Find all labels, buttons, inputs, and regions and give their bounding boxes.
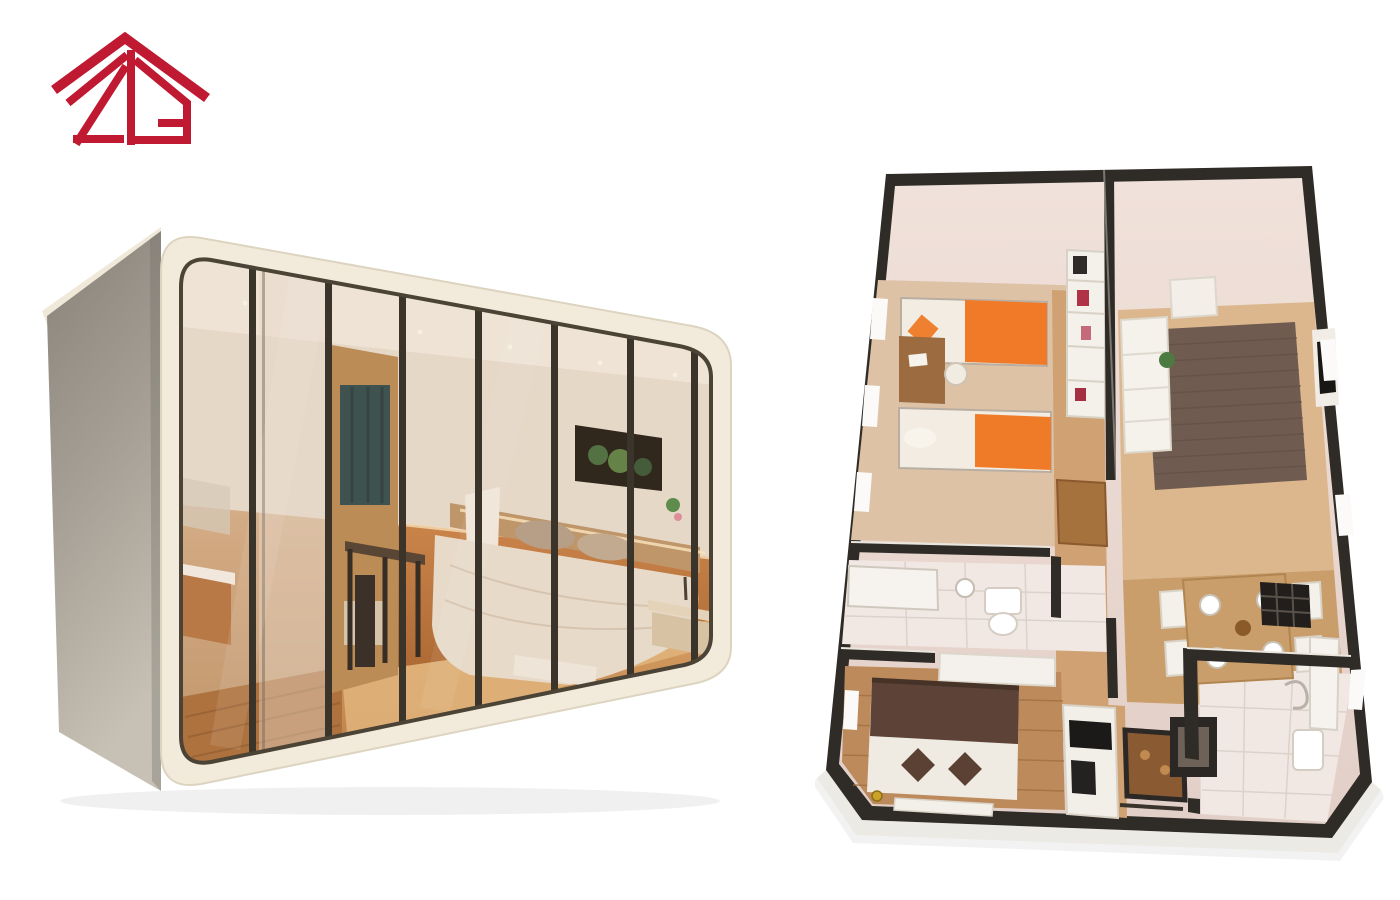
- pod-render: capsule house exterior render: [30, 205, 745, 817]
- window-left-4: [843, 690, 859, 730]
- mullion: [627, 335, 634, 681]
- shelf-item-dark: [1073, 256, 1087, 274]
- shelf-item-pink: [1081, 326, 1091, 340]
- wall-bathroom-main-left: [1183, 648, 1199, 760]
- mullion: [551, 322, 558, 695]
- brand-logo-2g-icon: 2G: [48, 14, 213, 164]
- bathroom-small-tub: [848, 566, 938, 610]
- wall-bathroom-main-stub: [1188, 798, 1200, 814]
- stove-burner: [1160, 765, 1170, 775]
- bathroom-main-counter: [1310, 637, 1339, 730]
- kids-bed-1-blanket: [965, 300, 1047, 365]
- living-sofa: [1121, 317, 1171, 453]
- bathroom-small-toilet-tank: [985, 588, 1021, 614]
- kids-desk-paper: [908, 353, 927, 367]
- kitchen-appliance-oven: [1071, 760, 1096, 795]
- plan-hall-cabinet: [1057, 480, 1107, 546]
- bathroom-small-sink: [956, 579, 974, 597]
- master-dresser: [939, 653, 1055, 686]
- wall-entry: [1106, 618, 1118, 698]
- master-gold-lamp: [872, 791, 882, 801]
- floor-plan-render: apartment 3D floor plan render: [815, 150, 1390, 865]
- mullion: [399, 295, 406, 724]
- mullion: [691, 346, 698, 668]
- living-armchair: [1170, 277, 1217, 318]
- bathroom-main-toilet: [1293, 730, 1323, 770]
- mullion: [325, 283, 332, 738]
- mullion: [249, 269, 256, 752]
- stove-burner: [1140, 750, 1150, 760]
- pod-side-panel: [47, 231, 161, 791]
- window-left-3: [854, 472, 872, 512]
- logo-strokes: [54, 38, 207, 145]
- page-canvas: 2G capsule house exterior render: [0, 0, 1400, 900]
- pod-ground-shadow: [60, 787, 720, 815]
- living-plant: [1159, 352, 1175, 368]
- bathroom-main-counter-grid: [1260, 582, 1311, 628]
- shelf-item-red-2: [1075, 388, 1086, 401]
- mullion: [475, 309, 482, 710]
- window-left-2: [862, 385, 880, 427]
- master-bed-blanket: [870, 680, 1019, 744]
- wall-bath-small-right: [1051, 556, 1061, 618]
- kids-chair: [945, 363, 967, 385]
- kids-bed-2-blanket: [975, 414, 1051, 470]
- kids-desk: [899, 336, 945, 404]
- shelf-item-red: [1077, 290, 1089, 306]
- window-left-1: [870, 298, 888, 340]
- kids-bed-2-pillow: [904, 428, 936, 448]
- bathroom-small-toilet: [989, 613, 1017, 635]
- kitchen-appliance-microwave: [1069, 720, 1112, 750]
